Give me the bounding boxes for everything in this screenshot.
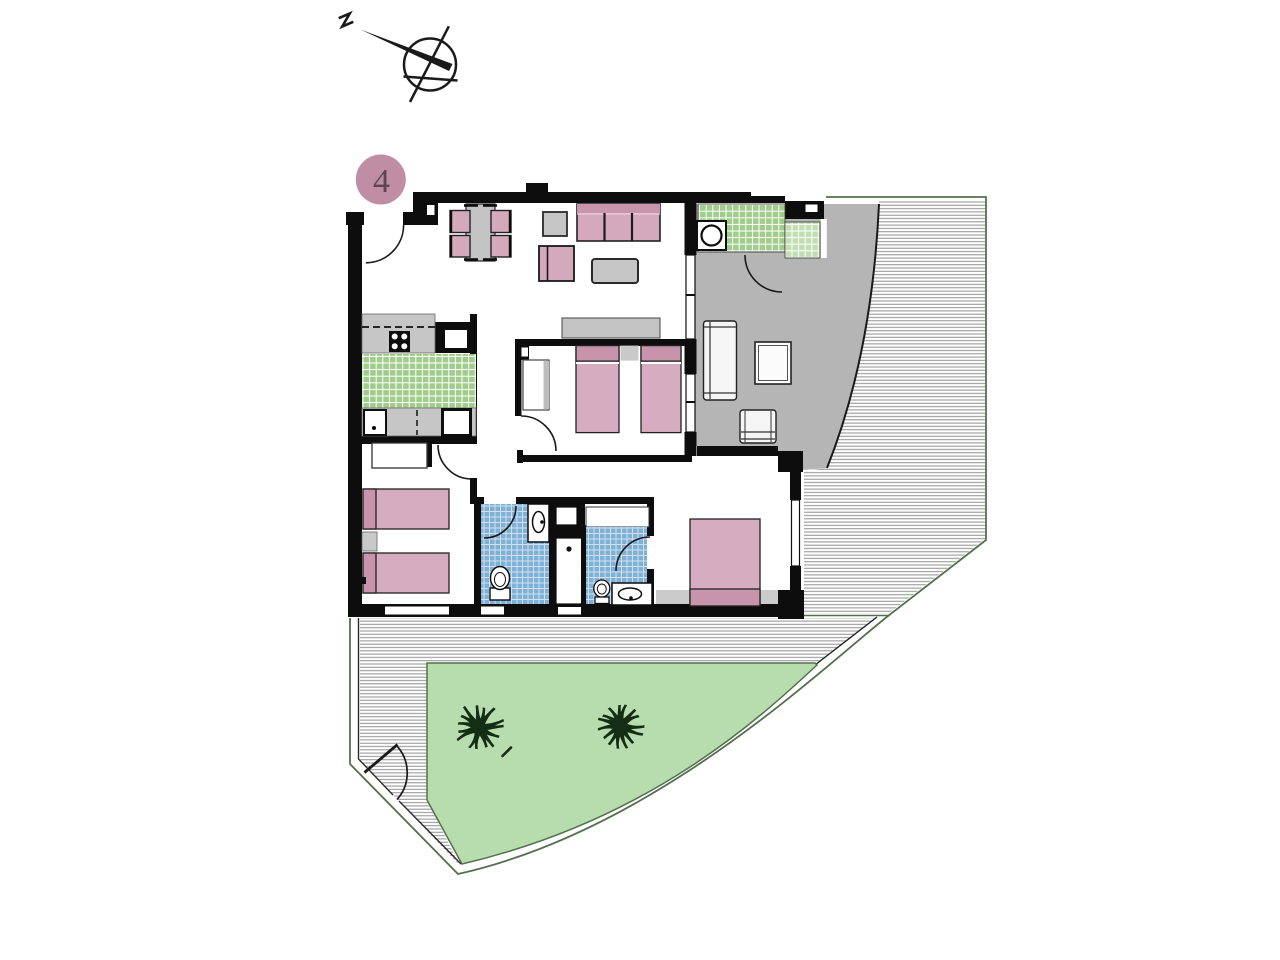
svg-text:4: 4 <box>373 163 390 200</box>
